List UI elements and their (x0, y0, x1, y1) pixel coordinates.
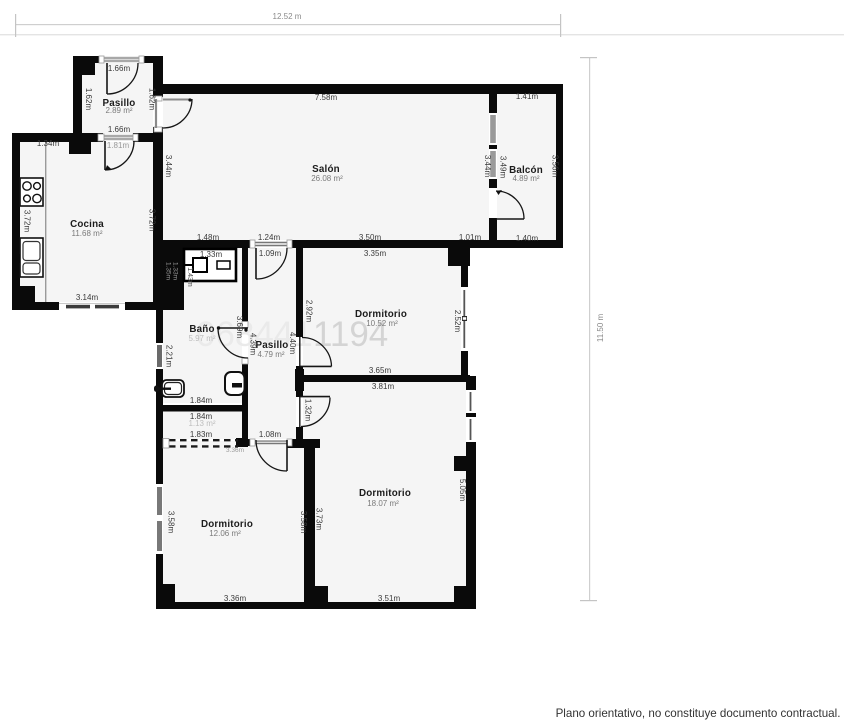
svg-text:12.52 m: 12.52 m (273, 12, 302, 21)
svg-text:4.39m: 4.39m (249, 333, 258, 356)
svg-text:26.08 m²: 26.08 m² (311, 174, 343, 183)
svg-text:2.52m: 2.52m (453, 310, 462, 333)
svg-text:11.68 m²: 11.68 m² (72, 229, 103, 238)
svg-text:1.35m: 1.35m (165, 262, 172, 280)
svg-text:1.66m: 1.66m (108, 125, 131, 134)
svg-text:1.41m: 1.41m (516, 92, 539, 101)
svg-text:1.43m: 1.43m (186, 267, 193, 287)
svg-text:3.73m: 3.73m (315, 508, 324, 531)
svg-text:3.72m: 3.72m (23, 210, 32, 233)
svg-text:1.33m: 1.33m (172, 262, 179, 280)
svg-text:18.07 m²: 18.07 m² (367, 499, 399, 508)
svg-text:1.48m: 1.48m (197, 233, 220, 242)
svg-text:2.21m: 2.21m (165, 345, 174, 368)
svg-text:10.52 m²: 10.52 m² (366, 319, 398, 328)
svg-text:5.97 m²: 5.97 m² (188, 334, 215, 343)
svg-text:1.40m: 1.40m (516, 234, 539, 243)
svg-text:3.14m: 3.14m (76, 293, 99, 302)
svg-text:3.35m: 3.35m (364, 249, 387, 258)
svg-text:Dormitorio: Dormitorio (359, 488, 411, 499)
svg-text:4.79 m²: 4.79 m² (257, 350, 284, 359)
svg-text:3.58m: 3.58m (299, 511, 308, 534)
svg-text:Plano orientativo, no constitu: Plano orientativo, no constituye documen… (556, 707, 841, 720)
svg-text:3.72m: 3.72m (148, 209, 157, 232)
svg-text:1.66m: 1.66m (108, 64, 131, 73)
svg-text:11.50 m: 11.50 m (596, 314, 605, 343)
svg-text:3.51m: 3.51m (378, 594, 401, 603)
svg-text:3.58m: 3.58m (167, 511, 176, 534)
svg-text:3.69m: 3.69m (235, 316, 244, 339)
svg-text:1.09m: 1.09m (259, 249, 282, 258)
svg-text:1.01m: 1.01m (459, 233, 482, 242)
svg-text:5.05m: 5.05m (458, 479, 467, 502)
svg-text:1.33m: 1.33m (200, 250, 223, 259)
svg-text:3.44m: 3.44m (483, 155, 492, 178)
svg-text:1.83m: 1.83m (190, 430, 213, 439)
svg-text:3.49m: 3.49m (499, 156, 508, 179)
svg-text:2.92m: 2.92m (305, 300, 314, 323)
svg-text:12.06 m²: 12.06 m² (209, 529, 241, 538)
svg-text:3.50m: 3.50m (359, 233, 382, 242)
svg-text:1.24m: 1.24m (258, 233, 281, 242)
svg-text:3.36m: 3.36m (224, 594, 247, 603)
svg-text:4.89 m²: 4.89 m² (512, 174, 539, 183)
svg-text:1.84m: 1.84m (190, 396, 213, 405)
svg-text:1.32m: 1.32m (304, 399, 313, 422)
svg-text:1.34m: 1.34m (37, 139, 60, 148)
svg-text:4.40m: 4.40m (288, 332, 297, 355)
svg-text:1.81m: 1.81m (107, 141, 130, 150)
svg-text:3.44m: 3.44m (164, 155, 173, 178)
svg-text:1.13 m²: 1.13 m² (188, 419, 215, 428)
svg-text:2.89 m²: 2.89 m² (105, 106, 132, 115)
svg-text:1.62m: 1.62m (148, 88, 157, 111)
svg-text:7.58m: 7.58m (315, 93, 338, 102)
svg-text:1.62m: 1.62m (84, 88, 93, 111)
svg-text:1.08m: 1.08m (259, 430, 282, 439)
svg-text:3.81m: 3.81m (372, 382, 395, 391)
svg-text:3.65m: 3.65m (369, 366, 392, 375)
svg-text:3.36m: 3.36m (226, 447, 244, 454)
svg-text:3.56m: 3.56m (551, 155, 560, 178)
